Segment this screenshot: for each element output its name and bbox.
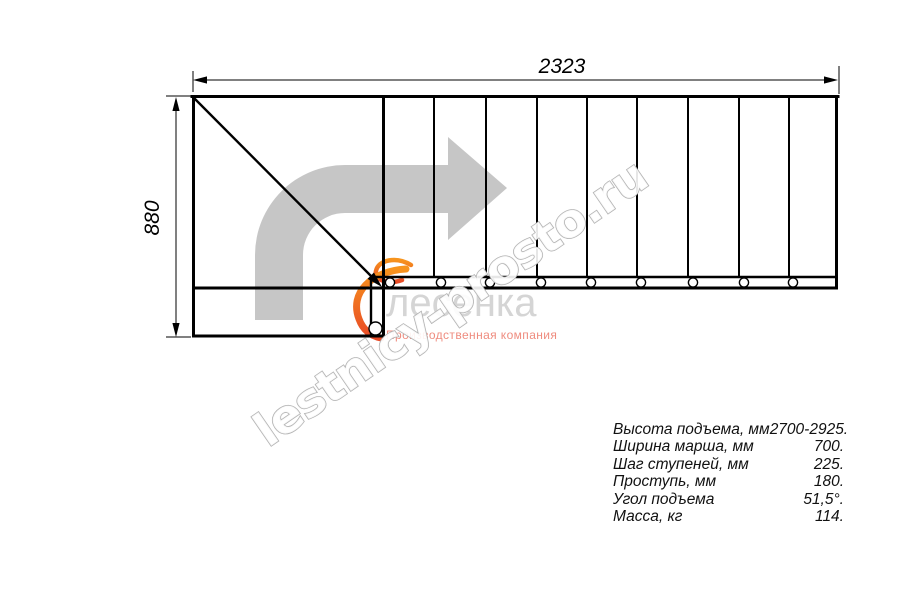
dim-arrow-top	[172, 97, 179, 111]
spec-value: 700.	[814, 438, 844, 455]
spec-label: Проступь, мм	[613, 473, 716, 490]
spec-label: Масса, кг	[613, 508, 682, 525]
spec-value: 180.	[814, 473, 844, 490]
spec-value: 225.	[814, 456, 844, 473]
spec-label: Угол подъема	[613, 491, 714, 508]
dim-arrow-left	[193, 76, 207, 83]
spec-row: Высота подъема, мм 2700-2925.	[613, 421, 844, 438]
spec-row: Шаг ступеней, мм 225.	[613, 456, 844, 473]
dim-height-label: 880	[141, 200, 164, 235]
spec-row: Ширина марша, мм 700.	[613, 438, 844, 455]
stair-drawing-page: лесенка Производственная компания	[0, 0, 900, 600]
dim-arrow-right	[824, 76, 838, 83]
spec-label: Шаг ступеней, мм	[613, 456, 749, 473]
spec-label: Ширина марша, мм	[613, 438, 754, 455]
dimension-width: 2323	[193, 55, 839, 94]
dim-arrow-bottom	[172, 323, 179, 337]
dim-width-label: 2323	[538, 55, 586, 78]
spec-label: Высота подъема, мм	[613, 421, 770, 438]
spec-value: 114.	[815, 508, 844, 525]
spec-value: 2700-2925.	[770, 421, 848, 438]
dimension-height: 880	[141, 96, 191, 337]
spec-row: Масса, кг 114.	[613, 508, 844, 525]
spec-value: 51,5°.	[803, 491, 844, 508]
specs-table: Высота подъема, мм 2700-2925. Ширина мар…	[613, 421, 844, 525]
spec-row: Проступь, мм 180.	[613, 473, 844, 490]
spec-row: Угол подъема 51,5°.	[613, 491, 844, 508]
